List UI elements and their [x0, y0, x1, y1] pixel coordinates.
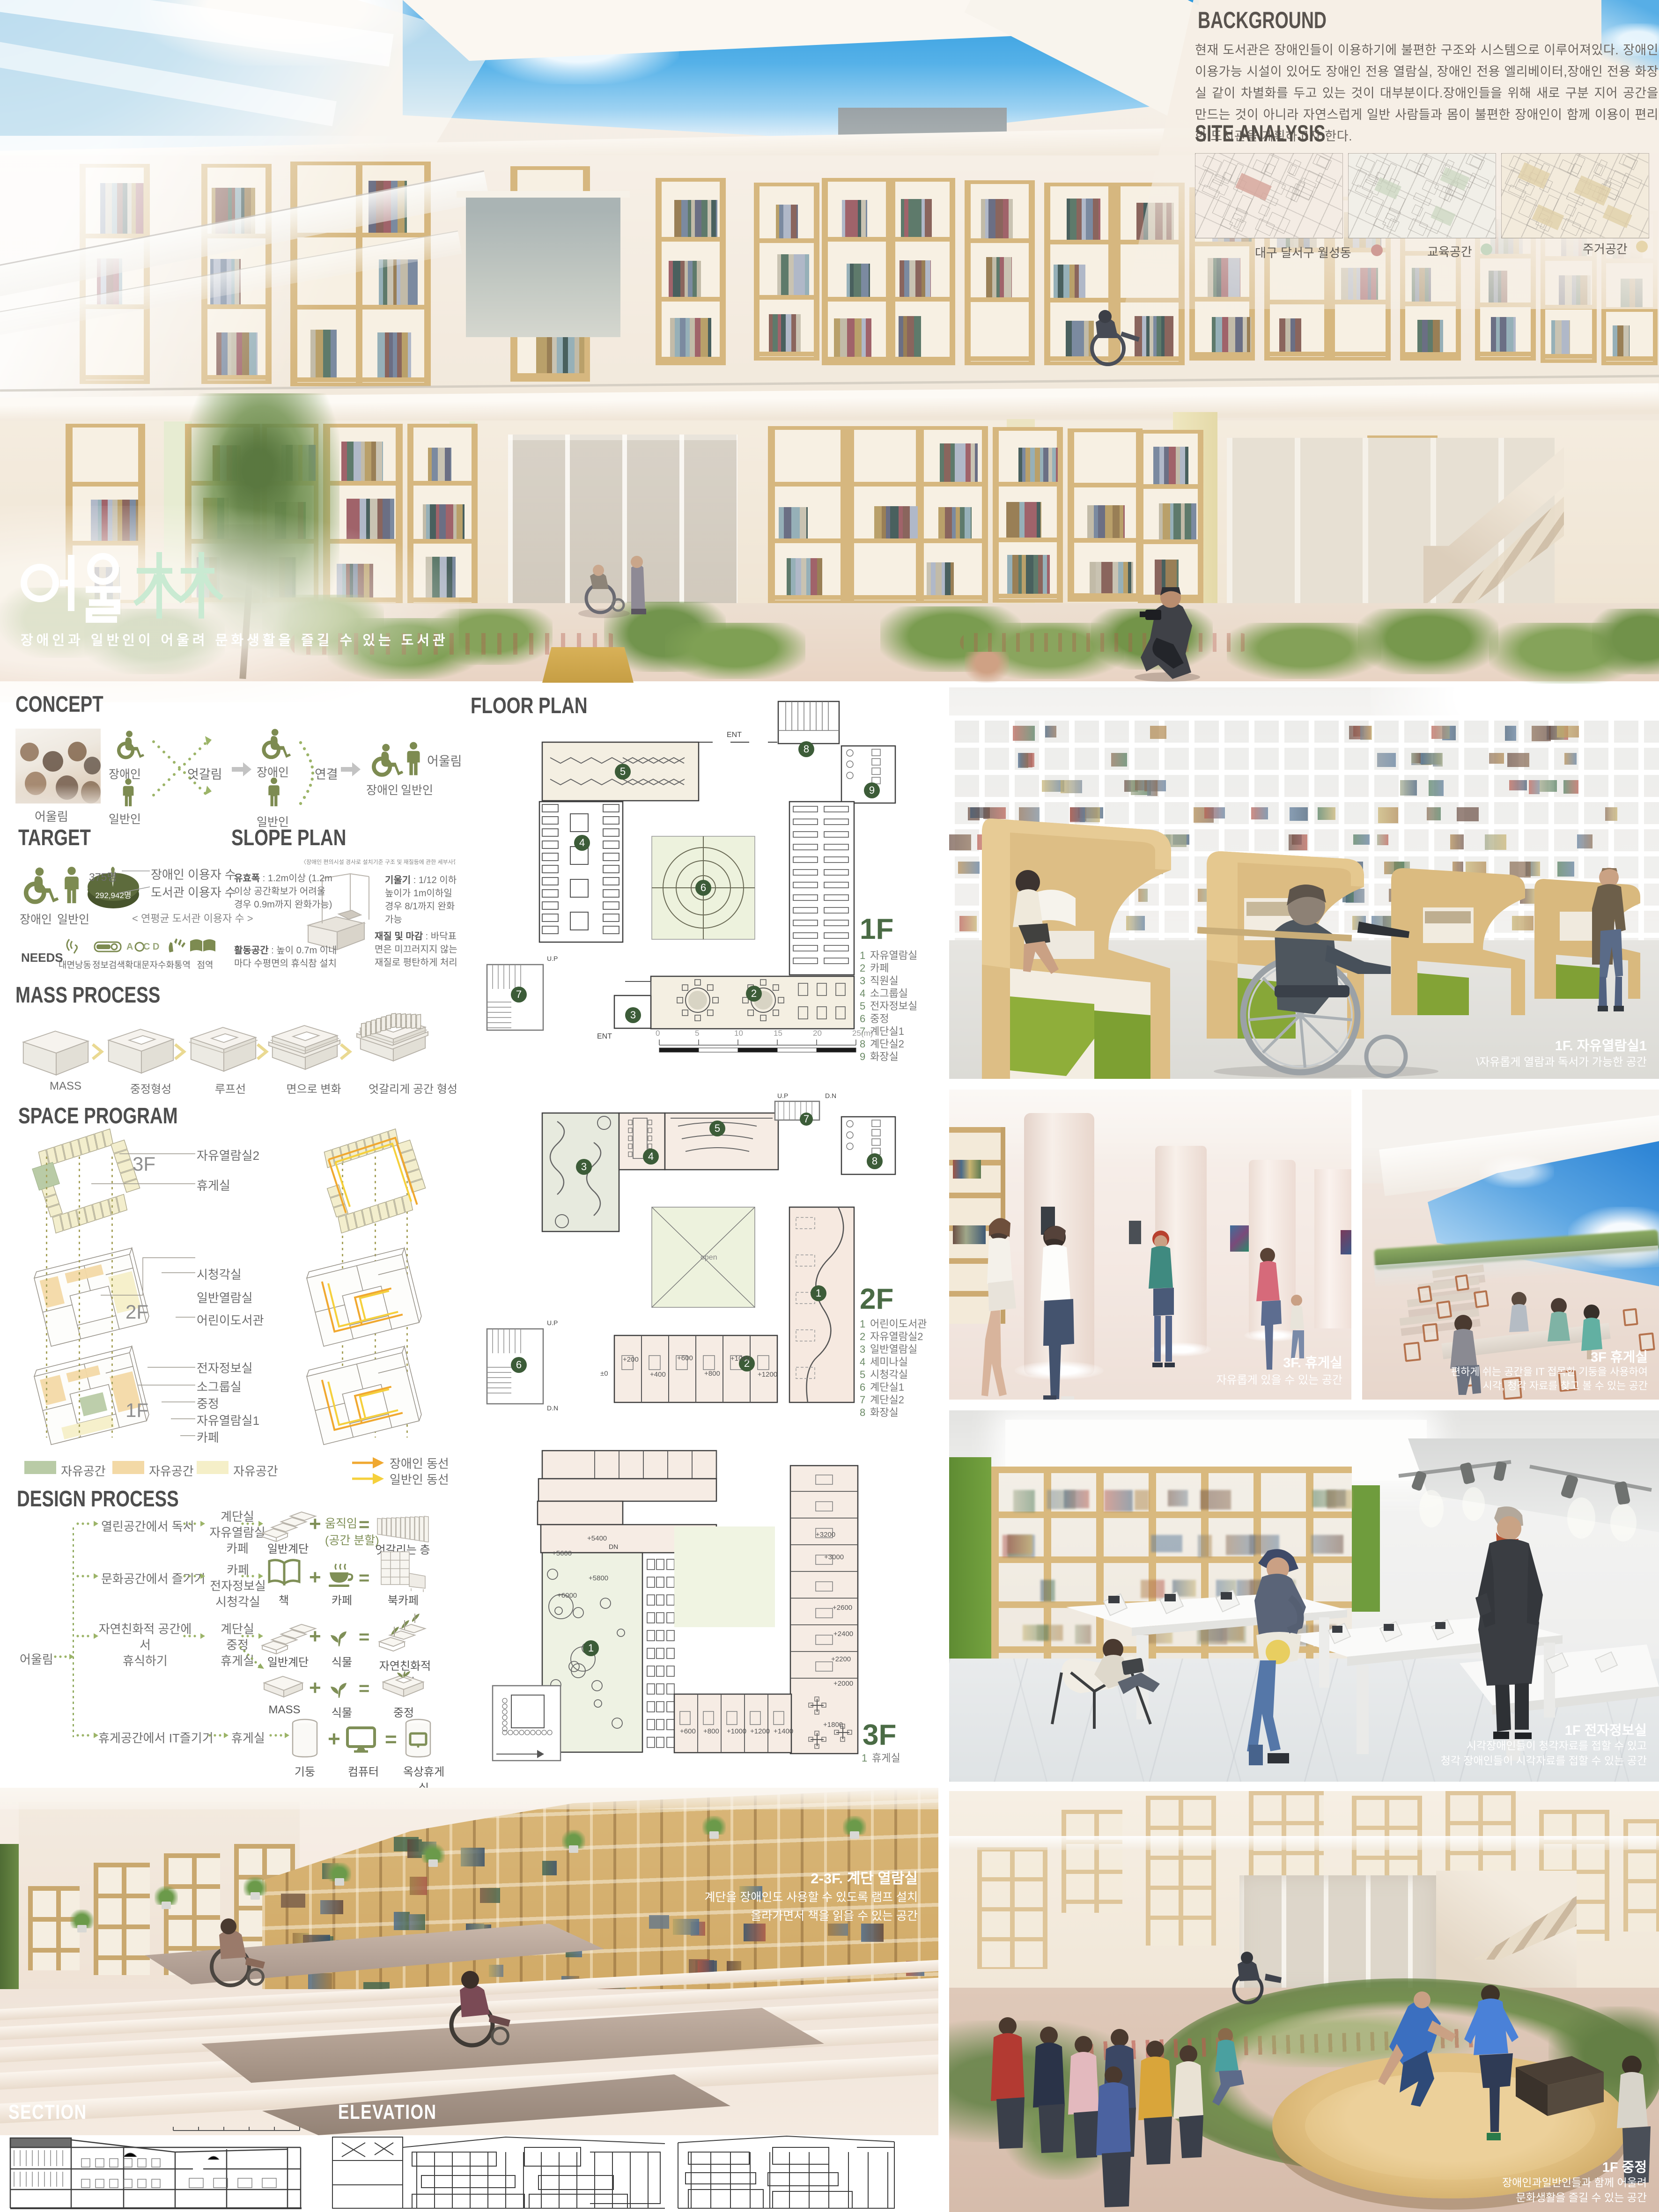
svg-text:1: 1 [862, 1752, 867, 1764]
svg-text:+3000: +3000 [824, 1553, 844, 1561]
svg-text:6: 6 [700, 882, 706, 893]
svg-text:5: 5 [715, 1122, 720, 1134]
svg-text:일반열람실: 일반열람실 [870, 1343, 917, 1355]
svg-text:+1200: +1200 [758, 1371, 777, 1379]
svg-text:1: 1 [860, 950, 865, 961]
svg-text:1F: 1F [860, 913, 893, 945]
svg-text:4: 4 [860, 988, 865, 999]
svg-text:+1000: +1000 [727, 1727, 746, 1735]
svg-text:시청각실: 시청각실 [870, 1369, 908, 1380]
svg-text:0: 0 [656, 1029, 660, 1038]
svg-text:A: A [126, 942, 133, 952]
svg-text:+1200: +1200 [750, 1727, 770, 1735]
svg-text:3: 3 [581, 1161, 587, 1172]
svg-text:3: 3 [860, 1343, 865, 1355]
svg-text:+1400: +1400 [774, 1727, 793, 1735]
svg-text:15: 15 [774, 1029, 782, 1038]
svg-text:+2400: +2400 [833, 1630, 853, 1638]
svg-text:ENT: ENT [597, 1032, 612, 1040]
svg-text:7: 7 [804, 1113, 809, 1125]
svg-text:+5600: +5600 [552, 1549, 572, 1557]
svg-text:계단실1: 계단실1 [870, 1381, 904, 1393]
svg-text:U.P: U.P [777, 1092, 788, 1099]
svg-text:5: 5 [695, 1029, 699, 1038]
svg-text:+800: +800 [704, 1370, 720, 1378]
svg-text:+1000: +1000 [730, 1355, 750, 1363]
svg-text:+2600: +2600 [833, 1604, 852, 1612]
svg-text:+5800: +5800 [589, 1574, 608, 1582]
svg-text:+400: +400 [650, 1371, 666, 1379]
svg-text:DN: DN [609, 1543, 618, 1550]
svg-text:10: 10 [734, 1029, 743, 1038]
svg-text:+600: +600 [677, 1354, 693, 1362]
svg-text:2: 2 [860, 962, 865, 974]
svg-text:8: 8 [860, 1038, 865, 1050]
svg-text:+2000: +2000 [833, 1680, 853, 1688]
svg-text:6: 6 [860, 1013, 865, 1025]
svg-text:자유열람실2: 자유열람실2 [870, 1331, 923, 1342]
svg-text:8: 8 [872, 1155, 877, 1167]
svg-text:계단실2: 계단실2 [870, 1394, 904, 1406]
svg-text:4: 4 [648, 1150, 654, 1162]
svg-text:3: 3 [860, 975, 865, 987]
svg-text:+5400: +5400 [587, 1534, 607, 1542]
svg-text:4: 4 [579, 837, 585, 848]
svg-text:6: 6 [860, 1381, 865, 1393]
svg-text:8: 8 [804, 743, 809, 755]
svg-text:+600: +600 [680, 1727, 696, 1735]
svg-text:카페: 카페 [870, 962, 889, 974]
svg-text:5: 5 [620, 766, 626, 777]
svg-text:어린이도서관: 어린이도서관 [870, 1318, 927, 1330]
svg-text:중정: 중정 [870, 1013, 889, 1025]
svg-text:3F: 3F [863, 1719, 896, 1751]
svg-text:25(m): 25(m) [852, 1029, 873, 1038]
svg-text:C D: C D [143, 942, 159, 952]
svg-text:6: 6 [516, 1359, 522, 1371]
svg-text:2F: 2F [860, 1283, 893, 1315]
svg-text:+6000: +6000 [557, 1592, 577, 1600]
svg-text:계단실2: 계단실2 [870, 1038, 904, 1050]
svg-text:1: 1 [860, 1318, 865, 1330]
svg-text:U.P: U.P [547, 955, 558, 962]
svg-text:8: 8 [860, 1407, 865, 1418]
svg-text:화장실: 화장실 [870, 1407, 899, 1418]
svg-text:4: 4 [860, 1356, 865, 1368]
svg-text:전자정보실: 전자정보실 [870, 1000, 917, 1012]
svg-text:휴게실: 휴게실 [872, 1752, 900, 1764]
svg-text:5: 5 [860, 1000, 865, 1012]
svg-text:화장실: 화장실 [870, 1051, 899, 1062]
svg-text:7: 7 [860, 1394, 865, 1406]
svg-text:소그룹실: 소그룹실 [870, 988, 908, 999]
svg-text:2: 2 [751, 988, 757, 999]
svg-text:±0: ±0 [600, 1370, 608, 1378]
svg-text:U.P: U.P [547, 1319, 558, 1327]
svg-text:+3200: +3200 [816, 1531, 835, 1539]
svg-text:3: 3 [630, 1009, 636, 1021]
svg-text:1: 1 [588, 1642, 594, 1654]
svg-text:20: 20 [813, 1029, 822, 1038]
svg-text:+1800: +1800 [823, 1721, 843, 1729]
svg-text:ENT: ENT [727, 731, 742, 739]
svg-text:세미나실: 세미나실 [870, 1356, 908, 1368]
svg-text:자유열람실: 자유열람실 [870, 950, 917, 961]
svg-text:9: 9 [860, 1051, 865, 1062]
svg-text:1: 1 [816, 1287, 821, 1299]
svg-text:open: open [700, 1253, 717, 1261]
svg-text:+2200: +2200 [831, 1655, 851, 1663]
svg-text:5: 5 [860, 1369, 865, 1380]
svg-text:D.N: D.N [547, 1404, 558, 1412]
svg-text:계단실1: 계단실1 [870, 1025, 904, 1037]
svg-text:7: 7 [516, 988, 522, 1000]
svg-text:D.N: D.N [825, 1092, 836, 1099]
svg-text:+200: +200 [623, 1356, 639, 1364]
svg-text:9: 9 [869, 784, 875, 796]
svg-text:2: 2 [860, 1331, 865, 1342]
svg-text:직원실: 직원실 [870, 975, 899, 987]
svg-text:+800: +800 [703, 1727, 719, 1735]
